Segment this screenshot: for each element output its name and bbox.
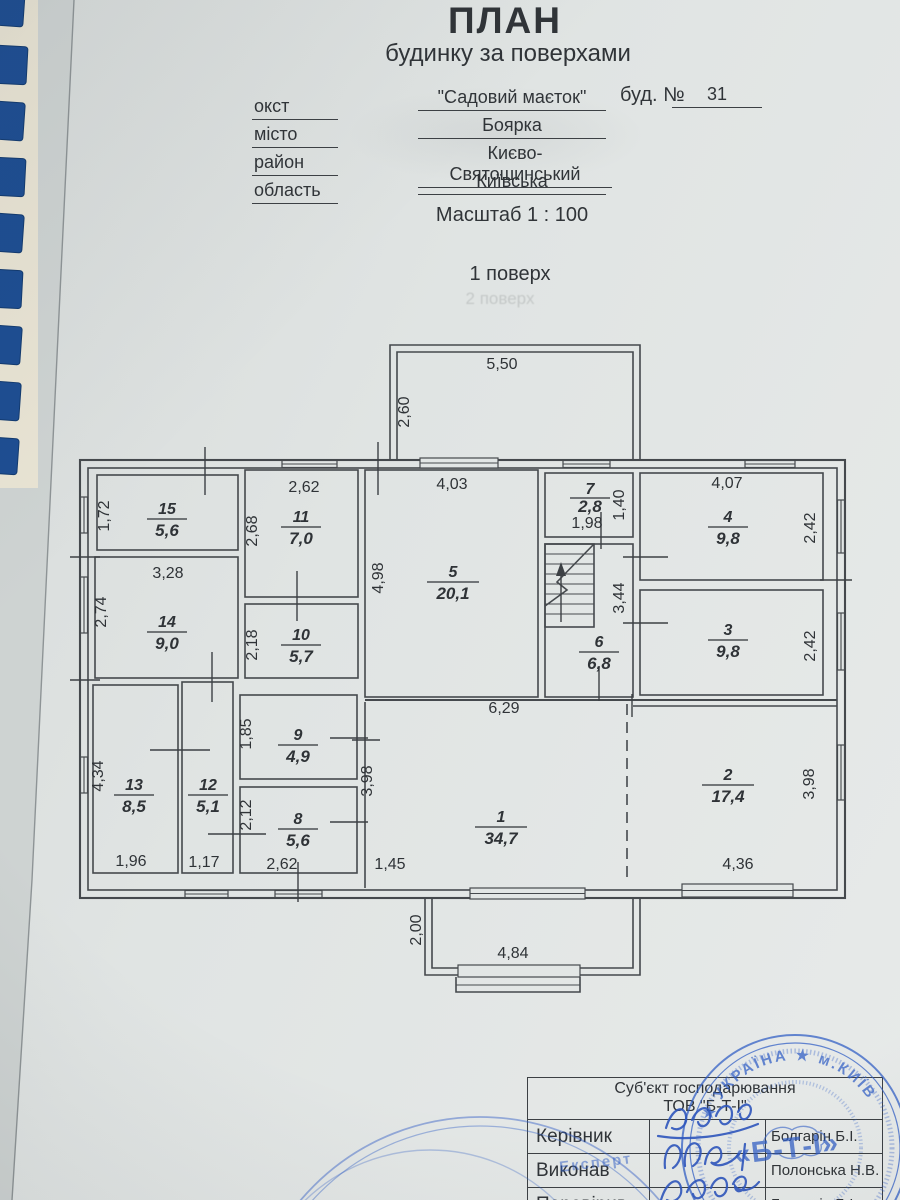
room-number: 13 — [125, 777, 143, 794]
room-number: 8 — [294, 811, 303, 828]
signature-table: Суб'єкт господарювання ТОВ "Б-Т-І" Керів… — [527, 1077, 883, 1200]
room-number: 4 — [723, 509, 733, 526]
dimension-label: 1,85 — [238, 718, 255, 749]
dimension-label: 3,98 — [359, 765, 376, 796]
room-labels: 155,6117,0149,0105,7520,172,866,849,839,… — [114, 481, 754, 850]
room-area: 5,1 — [196, 797, 220, 816]
table-row: Перевірив Болгарін Б.І. — [528, 1188, 882, 1200]
page-title: ПЛАН — [105, 0, 900, 42]
role-pereviryv: Перевірив — [528, 1188, 650, 1200]
form-label-misto: місто — [252, 124, 338, 148]
dimension-label: 4,03 — [436, 476, 467, 493]
room-area: 8,5 — [122, 797, 146, 816]
form-value-misto: Боярка — [418, 115, 606, 139]
role-kerivnyk: Керівник — [528, 1120, 650, 1153]
room-area: 6,8 — [587, 654, 611, 673]
room-number: 11 — [293, 509, 310, 526]
signature-table-header: Суб'єкт господарювання ТОВ "Б-Т-І" — [528, 1078, 882, 1120]
room-number: 1 — [497, 809, 506, 826]
room-area: 5,6 — [155, 521, 179, 540]
dimension-label: 1,45 — [374, 856, 405, 873]
org-header-line2: ТОВ "Б-Т-І" — [663, 1098, 746, 1115]
scale-label: Масштаб 1 : 100 — [112, 204, 900, 227]
dimension-label: 6,29 — [488, 700, 519, 717]
form-value-oblast: Київська — [418, 171, 606, 195]
dimension-label: 2,60 — [396, 396, 413, 427]
dimension-label: 2,42 — [802, 512, 819, 543]
room-number: 10 — [292, 627, 310, 644]
dimension-label: 4,07 — [711, 475, 742, 492]
dimension-label: 2,12 — [238, 799, 255, 830]
floor-label: 1 поверх — [110, 263, 900, 286]
building-number-value: 31 — [672, 84, 762, 108]
form-label-oblast: область — [252, 180, 338, 204]
name-kerivnyk: Болгарін Б.І. — [766, 1120, 882, 1153]
dimension-label: 3,28 — [152, 565, 183, 582]
room-number: 5 — [449, 564, 459, 581]
dimension-label: 3,44 — [611, 582, 628, 613]
dimension-label: 3,98 — [801, 768, 818, 799]
room-area: 2,8 — [577, 497, 602, 516]
dimension-label: 5,50 — [486, 356, 517, 373]
dimension-label: 2,18 — [244, 629, 261, 660]
room-area: 5,6 — [286, 831, 310, 850]
room-number: 12 — [199, 777, 217, 794]
room-number: 6 — [595, 634, 604, 651]
dimension-label: 1,96 — [115, 853, 146, 870]
room-area: 9,0 — [155, 634, 179, 653]
room-number: 2 — [723, 767, 733, 784]
org-header-line1: Суб'єкт господарювання — [614, 1080, 795, 1097]
dimension-label: 2,62 — [288, 479, 319, 496]
door-ticks — [70, 442, 852, 902]
scanned-floor-plan-page: 5,502,602,624,031,722,683,282,742,184,98… — [0, 0, 900, 1200]
room-area: 7,0 — [289, 529, 313, 548]
room-area: 34,7 — [484, 829, 519, 848]
dimension-label: 2,00 — [408, 914, 425, 945]
dimension-label: 2,42 — [802, 630, 819, 661]
staircase — [545, 544, 594, 627]
dimension-label: 4,34 — [90, 760, 107, 791]
room-area: 9,8 — [716, 529, 740, 548]
name-vykonav: Полонська Н.В. — [766, 1154, 882, 1187]
room-number: 3 — [724, 622, 733, 639]
signature-cell — [650, 1188, 766, 1200]
table-row: Керівник Болгарін Б.І. — [528, 1120, 882, 1154]
dimension-label: 1,17 — [188, 854, 219, 871]
dimension-label: 1,40 — [611, 489, 628, 520]
dimension-label: 4,36 — [722, 856, 753, 873]
room-number: 14 — [158, 614, 176, 631]
room-area: 5,7 — [289, 647, 314, 666]
room-area: 4,9 — [285, 747, 310, 766]
dimension-label: 4,84 — [497, 945, 528, 962]
table-row: Виконав Полонська Н.В. — [528, 1154, 882, 1188]
form-label-rayon: район — [252, 152, 338, 176]
role-vykonav: Виконав — [528, 1154, 650, 1187]
form-value-okst: "Садовий маєток" — [418, 87, 606, 111]
dimension-label: 2,62 — [266, 856, 297, 873]
signature-cell — [650, 1120, 766, 1153]
room-number: 15 — [158, 501, 177, 518]
dimension-label: 4,98 — [370, 562, 387, 593]
name-pereviryv: Болгарін Б.І. — [766, 1188, 882, 1200]
room-area: 17,4 — [711, 787, 745, 806]
dimension-label: 2,68 — [244, 515, 261, 546]
room-number: 9 — [294, 727, 303, 744]
signature-cell — [650, 1154, 766, 1187]
dimension-label: 2,74 — [93, 596, 110, 627]
room-area: 9,8 — [716, 642, 740, 661]
room-area: 20,1 — [435, 584, 469, 603]
form-label-okst: окст — [252, 96, 338, 120]
room-number: 7 — [586, 481, 596, 498]
dimension-label: 1,98 — [571, 515, 602, 532]
dimension-labels: 5,502,602,624,031,722,683,282,742,184,98… — [90, 356, 819, 962]
dimension-label: 1,72 — [96, 500, 113, 531]
page-subtitle: будинку за поверхами — [105, 40, 900, 68]
ghost-floor-label: 2 поверх — [100, 289, 900, 309]
